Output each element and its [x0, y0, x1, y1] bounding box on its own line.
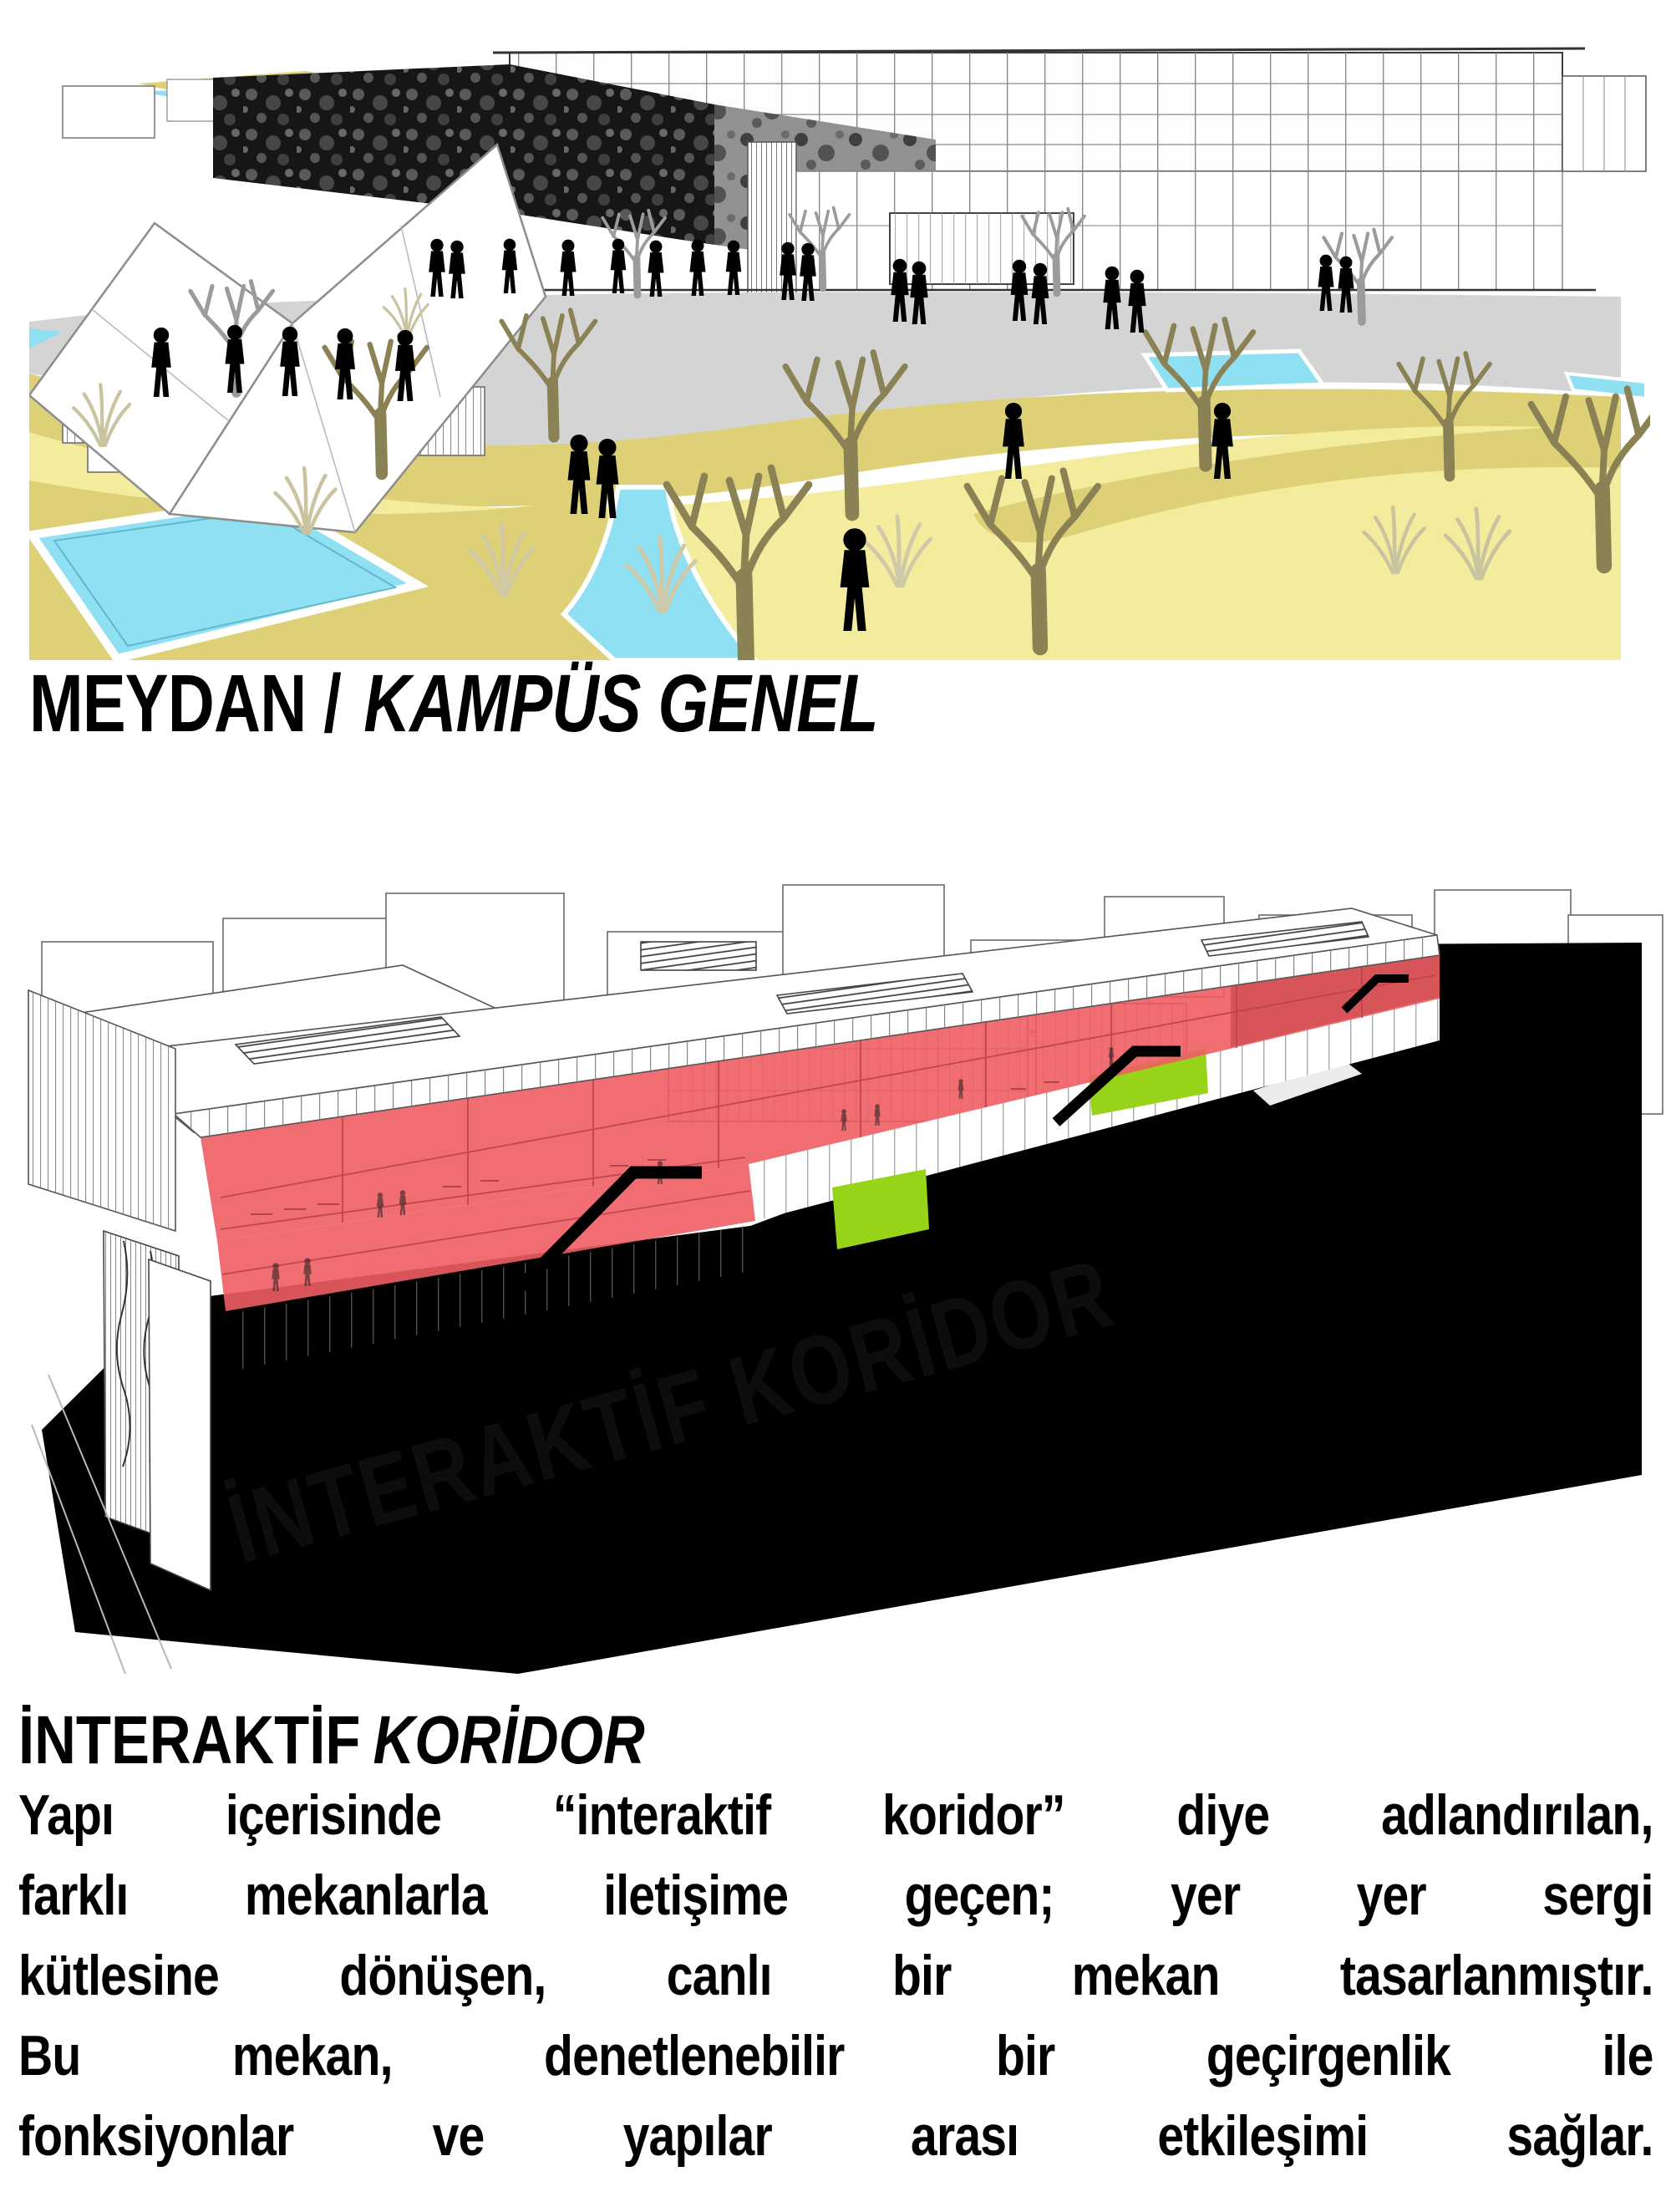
pedestrian	[800, 243, 816, 301]
pedestrian	[648, 241, 663, 297]
section-heading: İNTERAKTİFKORİDOR	[18, 1701, 645, 1780]
paragraph-line: fonksiyonlar ve yapılar arası etkileşimi…	[18, 2096, 1653, 2176]
paragraph-line: kütlesine dönüşen, canlı bir mekan tasar…	[18, 1935, 1653, 2016]
paragraph-line: Bu mekan, denetlenebilir bir geçirgenlik…	[18, 2016, 1653, 2096]
section-heading-italic: KORİDOR	[373, 1702, 645, 1778]
presentation-board: MEYDAN /KAMPÜS GENEL	[0, 0, 1671, 2212]
body-paragraph: Yapı içerisinde “interaktif koridor” diy…	[18, 1775, 1653, 2176]
campus-caption-bold: MEYDAN /	[29, 658, 341, 749]
end-pier	[149, 1259, 211, 1590]
water-canal-far-right	[1567, 374, 1646, 399]
section-heading-bold: İNTERAKTİF	[18, 1702, 360, 1778]
campus-plaza-rendering	[29, 46, 1650, 660]
interactive-corridor-section-rendering: İNTERAKTİF KORİDOR	[25, 840, 1667, 1676]
pedestrian	[726, 241, 741, 295]
campus-plaza-svg	[29, 46, 1650, 660]
pedestrian	[560, 240, 576, 296]
pedestrian	[689, 240, 705, 296]
corridor-section-svg: İNTERAKTİF KORİDOR	[25, 840, 1667, 1676]
paragraph-line: Yapı içerisinde “interaktif koridor” diy…	[18, 1775, 1653, 1855]
pedestrian	[611, 239, 626, 293]
paragraph-line: farklı mekanlarla iletişime geçen; yer y…	[18, 1855, 1653, 1935]
campus-caption-italic: KAMPÜS GENEL	[363, 658, 878, 749]
campus-caption: MEYDAN /KAMPÜS GENEL	[29, 657, 878, 750]
